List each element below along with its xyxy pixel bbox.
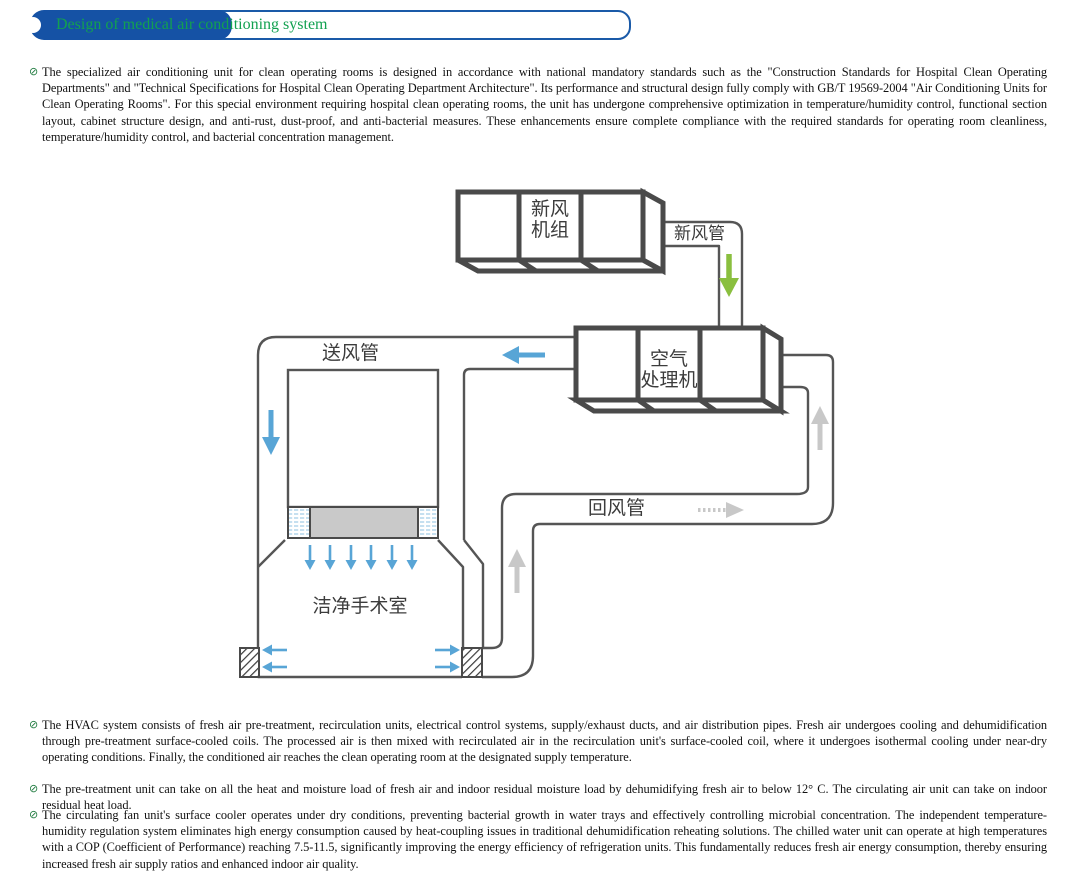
label-air-handler: 空气 处理机 bbox=[629, 349, 709, 391]
document-page: Design of medical air conditioning syste… bbox=[0, 0, 1068, 882]
label-supply-duct: 送风管 bbox=[322, 343, 379, 364]
return-grille-blocks bbox=[240, 648, 482, 677]
paragraph-text: The HVAC system consists of fresh air pr… bbox=[42, 717, 1047, 766]
fresh-air-flow-arrow-green bbox=[719, 254, 739, 297]
hepa-filter-assembly bbox=[288, 507, 438, 538]
ceiling-diffuser-arrows bbox=[305, 545, 418, 570]
label-return-duct: 回风管 bbox=[588, 498, 645, 519]
page-title: Design of medical air conditioning syste… bbox=[56, 10, 328, 40]
label-fresh-air-duct: 新风管 bbox=[674, 224, 725, 245]
supply-plenum-box bbox=[288, 370, 438, 507]
return-flow-arrow-right bbox=[698, 502, 744, 518]
return-flow-arrow-up-mid bbox=[508, 549, 526, 593]
label-fresh-air-unit: 新风 机组 bbox=[510, 199, 590, 241]
room-exhaust-arrows-left bbox=[262, 645, 287, 673]
supply-duct-pipe bbox=[258, 337, 576, 677]
paragraph-hvac-system: ⊘ The HVAC system consists of fresh air … bbox=[29, 717, 1047, 766]
room-exhaust-arrows-right bbox=[435, 645, 460, 673]
circle-slash-bullet-icon: ⊘ bbox=[29, 65, 38, 78]
paragraph-circulating-fan: ⊘ The circulating fan unit's surface coo… bbox=[29, 807, 1047, 872]
circle-slash-bullet-icon: ⊘ bbox=[29, 808, 38, 821]
banner-notch-icon bbox=[25, 17, 41, 33]
supply-flow-arrow-left bbox=[502, 346, 545, 364]
paragraph-text: The specialized air conditioning unit fo… bbox=[42, 64, 1047, 145]
circle-slash-bullet-icon: ⊘ bbox=[29, 782, 38, 795]
return-duct-pipe bbox=[482, 355, 833, 677]
paragraph-text: The circulating fan unit's surface coole… bbox=[42, 807, 1047, 872]
return-flow-arrow-up-right bbox=[811, 406, 829, 450]
label-operating-room: 洁净手术室 bbox=[270, 596, 450, 617]
supply-flow-arrow-down bbox=[262, 410, 280, 455]
circle-slash-bullet-icon: ⊘ bbox=[29, 718, 38, 731]
paragraph-intro: ⊘ The specialized air conditioning unit … bbox=[29, 64, 1047, 145]
